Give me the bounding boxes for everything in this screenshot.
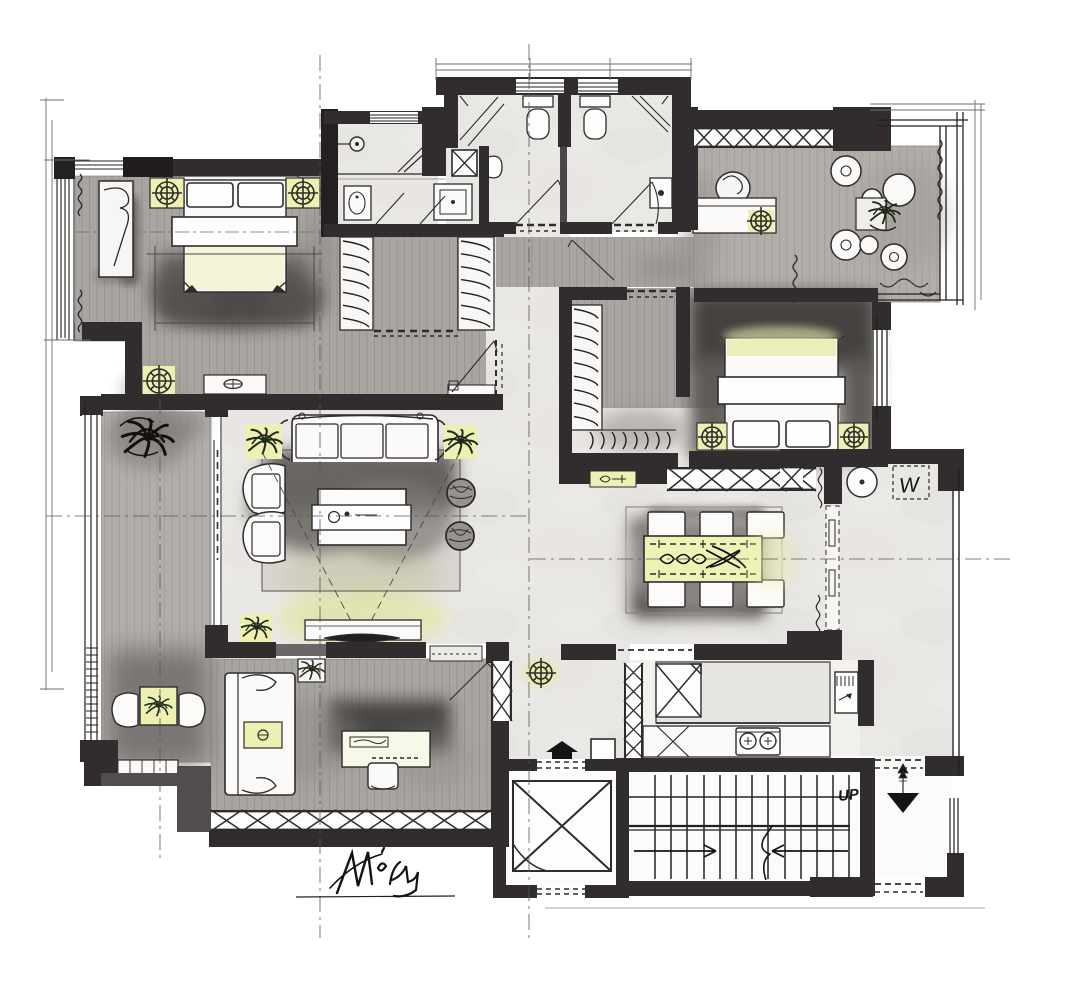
svg-text:UP: UP: [837, 786, 860, 805]
svg-text:W: W: [898, 473, 922, 497]
